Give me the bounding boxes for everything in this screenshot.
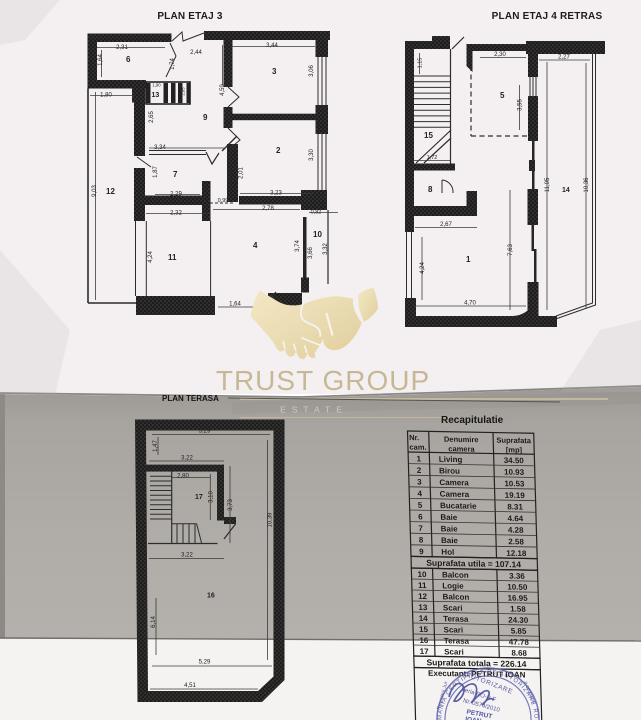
svg-text:10: 10 <box>313 230 322 239</box>
svg-text:3,44: 3,44 <box>266 43 278 49</box>
svg-text:10,39: 10,39 <box>268 512 274 528</box>
svg-text:2: 2 <box>417 466 422 475</box>
svg-text:Terasa: Terasa <box>443 614 469 623</box>
svg-text:PLAN ETAJ 4 RETRAS: PLAN ETAJ 4 RETRAS <box>492 11 603 22</box>
svg-text:4,24: 4,24 <box>420 262 426 274</box>
svg-text:1,64: 1,64 <box>229 302 241 308</box>
svg-text:17: 17 <box>195 494 203 501</box>
svg-text:Living: Living <box>439 455 463 464</box>
svg-text:Scari: Scari <box>443 603 463 612</box>
svg-text:5: 5 <box>418 501 423 510</box>
svg-text:10,36: 10,36 <box>584 177 590 193</box>
svg-text:ESTATE: ESTATE <box>280 405 348 415</box>
svg-text:7,03: 7,03 <box>230 169 236 181</box>
svg-text:1.58: 1.58 <box>510 605 526 614</box>
svg-text:8.31: 8.31 <box>507 502 523 511</box>
svg-text:3: 3 <box>417 478 422 487</box>
svg-text:9: 9 <box>419 547 424 556</box>
svg-text:19.19: 19.19 <box>505 491 526 500</box>
svg-text:Bucatarie: Bucatarie <box>440 501 477 511</box>
svg-text:2.58: 2.58 <box>508 537 524 546</box>
svg-text:5.85: 5.85 <box>511 627 527 636</box>
svg-text:Baie: Baie <box>440 513 458 522</box>
svg-text:Terasa: Terasa <box>444 636 470 645</box>
svg-text:9,03: 9,03 <box>92 185 98 197</box>
svg-text:7: 7 <box>418 524 423 533</box>
svg-text:13: 13 <box>152 92 160 99</box>
svg-text:3,55: 3,55 <box>518 99 524 111</box>
svg-text:PLAN ETAJ 3: PLAN ETAJ 3 <box>157 11 223 22</box>
svg-text:4,70: 4,70 <box>464 301 476 307</box>
svg-text:Camera: Camera <box>440 490 470 500</box>
svg-text:Balcon: Balcon <box>443 592 470 601</box>
svg-text:cam.: cam. <box>409 443 426 452</box>
svg-text:Scari: Scari <box>444 647 464 656</box>
svg-text:7: 7 <box>173 170 178 179</box>
svg-text:2,80: 2,80 <box>177 474 189 480</box>
svg-text:8: 8 <box>419 536 424 545</box>
svg-text:3,66: 3,66 <box>308 247 314 259</box>
svg-text:2,44: 2,44 <box>190 50 202 56</box>
svg-text:17: 17 <box>420 647 430 656</box>
svg-text:12: 12 <box>106 187 115 196</box>
svg-text:2,65: 2,65 <box>149 111 155 123</box>
svg-text:TRUST GROUP: TRUST GROUP <box>216 365 430 396</box>
svg-text:34.50: 34.50 <box>504 456 525 465</box>
svg-text:Denumire: Denumire <box>444 435 479 445</box>
svg-text:Scari: Scari <box>443 625 463 634</box>
svg-text:4.64: 4.64 <box>507 514 523 523</box>
svg-text:Baie: Baie <box>441 524 459 533</box>
svg-text:3,23: 3,23 <box>270 191 282 197</box>
svg-text:camera: camera <box>448 444 475 453</box>
svg-text:6: 6 <box>126 55 131 64</box>
svg-text:16: 16 <box>419 636 429 645</box>
svg-text:1,87: 1,87 <box>153 166 159 178</box>
svg-text:Suprafata: Suprafata <box>496 436 532 446</box>
svg-text:2,30: 2,30 <box>494 52 506 58</box>
svg-text:3: 3 <box>272 67 277 76</box>
svg-text:7,63: 7,63 <box>508 244 514 256</box>
svg-text:1,47: 1,47 <box>153 440 159 452</box>
svg-text:13: 13 <box>418 603 428 612</box>
svg-text:4.28: 4.28 <box>508 526 524 535</box>
svg-text:3,30: 3,30 <box>309 149 315 161</box>
svg-text:3,22: 3,22 <box>181 456 193 462</box>
svg-text:11,05: 11,05 <box>545 177 551 192</box>
svg-text:2,32: 2,32 <box>170 211 182 217</box>
svg-text:2,29: 2,29 <box>170 192 182 198</box>
svg-text:Suprafata utila = 107.14: Suprafata utila = 107.14 <box>426 558 521 570</box>
svg-text:0,82: 0,82 <box>311 210 322 216</box>
svg-text:1,74: 1,74 <box>170 58 176 70</box>
svg-text:4: 4 <box>417 489 422 498</box>
svg-text:3,32: 3,32 <box>323 243 329 255</box>
svg-text:3,73: 3,73 <box>228 499 234 511</box>
svg-text:47.78: 47.78 <box>509 638 530 647</box>
svg-text:24.30: 24.30 <box>508 616 529 625</box>
svg-text:8: 8 <box>428 185 433 194</box>
svg-text:1,64: 1,64 <box>98 54 104 66</box>
svg-text:2,05: 2,05 <box>181 87 186 96</box>
svg-text:3,22: 3,22 <box>181 553 193 559</box>
svg-text:6,14: 6,14 <box>151 616 157 628</box>
svg-text:Nr.: Nr. <box>409 433 419 442</box>
svg-text:2,78: 2,78 <box>262 206 274 212</box>
svg-text:2,31: 2,31 <box>116 45 128 51</box>
svg-text:12: 12 <box>418 592 428 601</box>
svg-text:5: 5 <box>500 91 505 100</box>
svg-text:1,72: 1,72 <box>427 155 438 161</box>
svg-text:10.53: 10.53 <box>504 479 525 488</box>
svg-text:Logie: Logie <box>442 581 464 590</box>
svg-text:5,29: 5,29 <box>199 429 211 435</box>
svg-text:0,99: 0,99 <box>218 198 229 204</box>
svg-text:3,10: 3,10 <box>209 491 215 503</box>
svg-text:PLAN TERASA: PLAN TERASA <box>162 394 219 403</box>
svg-text:Camera: Camera <box>439 478 469 488</box>
svg-text:1,80: 1,80 <box>100 93 112 99</box>
svg-text:3,06: 3,06 <box>309 65 315 77</box>
svg-text:Balcon: Balcon <box>442 570 469 579</box>
svg-text:15: 15 <box>419 625 429 634</box>
svg-text:Recapitulatie: Recapitulatie <box>441 415 504 426</box>
svg-text:1: 1 <box>416 454 421 463</box>
svg-text:1,90: 1,90 <box>152 83 161 88</box>
svg-text:Hol: Hol <box>441 548 454 557</box>
svg-text:3,74: 3,74 <box>295 240 301 252</box>
svg-text:4,51: 4,51 <box>184 683 196 689</box>
svg-text:6: 6 <box>418 512 423 521</box>
svg-text:4,59: 4,59 <box>220 84 226 96</box>
svg-text:1: 1 <box>466 255 471 264</box>
svg-text:10: 10 <box>417 570 427 579</box>
svg-text:[mp]: [mp] <box>506 445 523 454</box>
svg-text:11: 11 <box>168 253 177 262</box>
svg-text:11: 11 <box>418 581 427 590</box>
svg-text:2,67: 2,67 <box>440 222 452 228</box>
svg-text:2: 2 <box>276 146 281 155</box>
svg-text:16.95: 16.95 <box>507 594 528 603</box>
svg-text:4: 4 <box>253 241 258 250</box>
svg-text:5,29: 5,29 <box>199 660 211 666</box>
svg-text:3.36: 3.36 <box>509 572 525 581</box>
svg-text:8.68: 8.68 <box>511 649 527 658</box>
svg-text:Suprafata totala = 226.14: Suprafata totala = 226.14 <box>426 657 526 669</box>
svg-text:10.93: 10.93 <box>504 468 525 477</box>
svg-text:Birou: Birou <box>439 466 460 475</box>
svg-text:1,15: 1,15 <box>418 58 424 69</box>
svg-text:4,24: 4,24 <box>148 251 154 263</box>
svg-text:12.18: 12.18 <box>506 549 527 558</box>
svg-text:3,34: 3,34 <box>154 145 166 151</box>
svg-text:14: 14 <box>419 614 429 623</box>
svg-text:9: 9 <box>203 113 208 122</box>
svg-text:16: 16 <box>207 593 215 600</box>
svg-text:15: 15 <box>424 131 433 140</box>
svg-text:10.50: 10.50 <box>507 583 528 592</box>
svg-text:Baie: Baie <box>441 536 459 545</box>
svg-text:14: 14 <box>562 187 570 194</box>
svg-text:2,01: 2,01 <box>239 167 245 179</box>
svg-text:2,27: 2,27 <box>558 55 570 61</box>
